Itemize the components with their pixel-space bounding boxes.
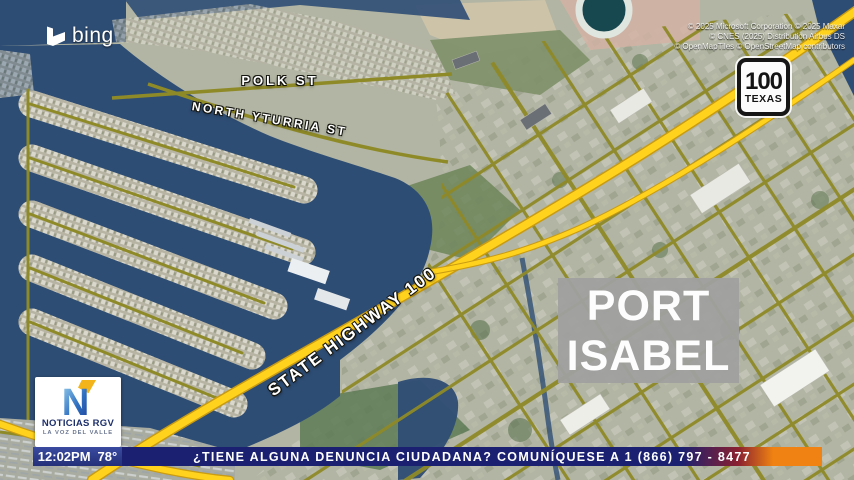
map-attribution: © 2025 Microsoft Corporation © 2025 Maxa… <box>674 22 845 52</box>
place-label-port-isabel: PORT ISABEL <box>558 278 739 383</box>
bing-logo-icon <box>46 25 66 48</box>
place-label-line2: ISABEL <box>567 331 731 381</box>
broadcast-frame: POLK ST NORTH YTURRIA ST STATE HIGHWAY 1… <box>0 0 854 480</box>
station-tagline: LA VOZ DEL VALLE <box>43 429 113 437</box>
street-label-polk: POLK ST <box>205 73 355 88</box>
highway-shield: 100 TEXAS <box>737 58 790 116</box>
shield-state: TEXAS <box>745 94 783 105</box>
attribution-line: © OpenMapTiles © OpenStreetMap contribut… <box>674 42 845 52</box>
station-logo-n-icon: N <box>58 379 98 419</box>
lower-third-bar: 12:02PM 78° ¿TIENE ALGUNA DENUNCIA CIUDA… <box>33 447 822 466</box>
bing-logo-text: bing <box>72 24 114 48</box>
ticker-text: ¿TIENE ALGUNA DENUNCIA CIUDADANA? COMUNÍ… <box>193 450 751 464</box>
bing-logo[interactable]: bing <box>46 24 114 48</box>
shield-number: 100 <box>745 70 782 94</box>
attribution-line: © CNES (2025) Distribution Airbus DS <box>674 32 845 42</box>
water-tower <box>579 0 629 35</box>
svg-text:N: N <box>62 382 90 419</box>
station-logo-card: N NOTICIAS RGV LA VOZ DEL VALLE <box>35 377 121 447</box>
place-label-line1: PORT <box>587 281 710 331</box>
attribution-line: © 2025 Microsoft Corporation © 2025 Maxa… <box>674 22 845 32</box>
news-ticker: ¿TIENE ALGUNA DENUNCIA CIUDADANA? COMUNÍ… <box>122 447 822 466</box>
station-name: NOTICIAS RGV <box>42 419 114 429</box>
clock-temperature: 78° <box>98 449 118 464</box>
clock-bar: 12:02PM 78° <box>33 447 122 466</box>
clock-time: 12:02PM <box>38 449 91 464</box>
satellite-map[interactable] <box>0 0 854 480</box>
